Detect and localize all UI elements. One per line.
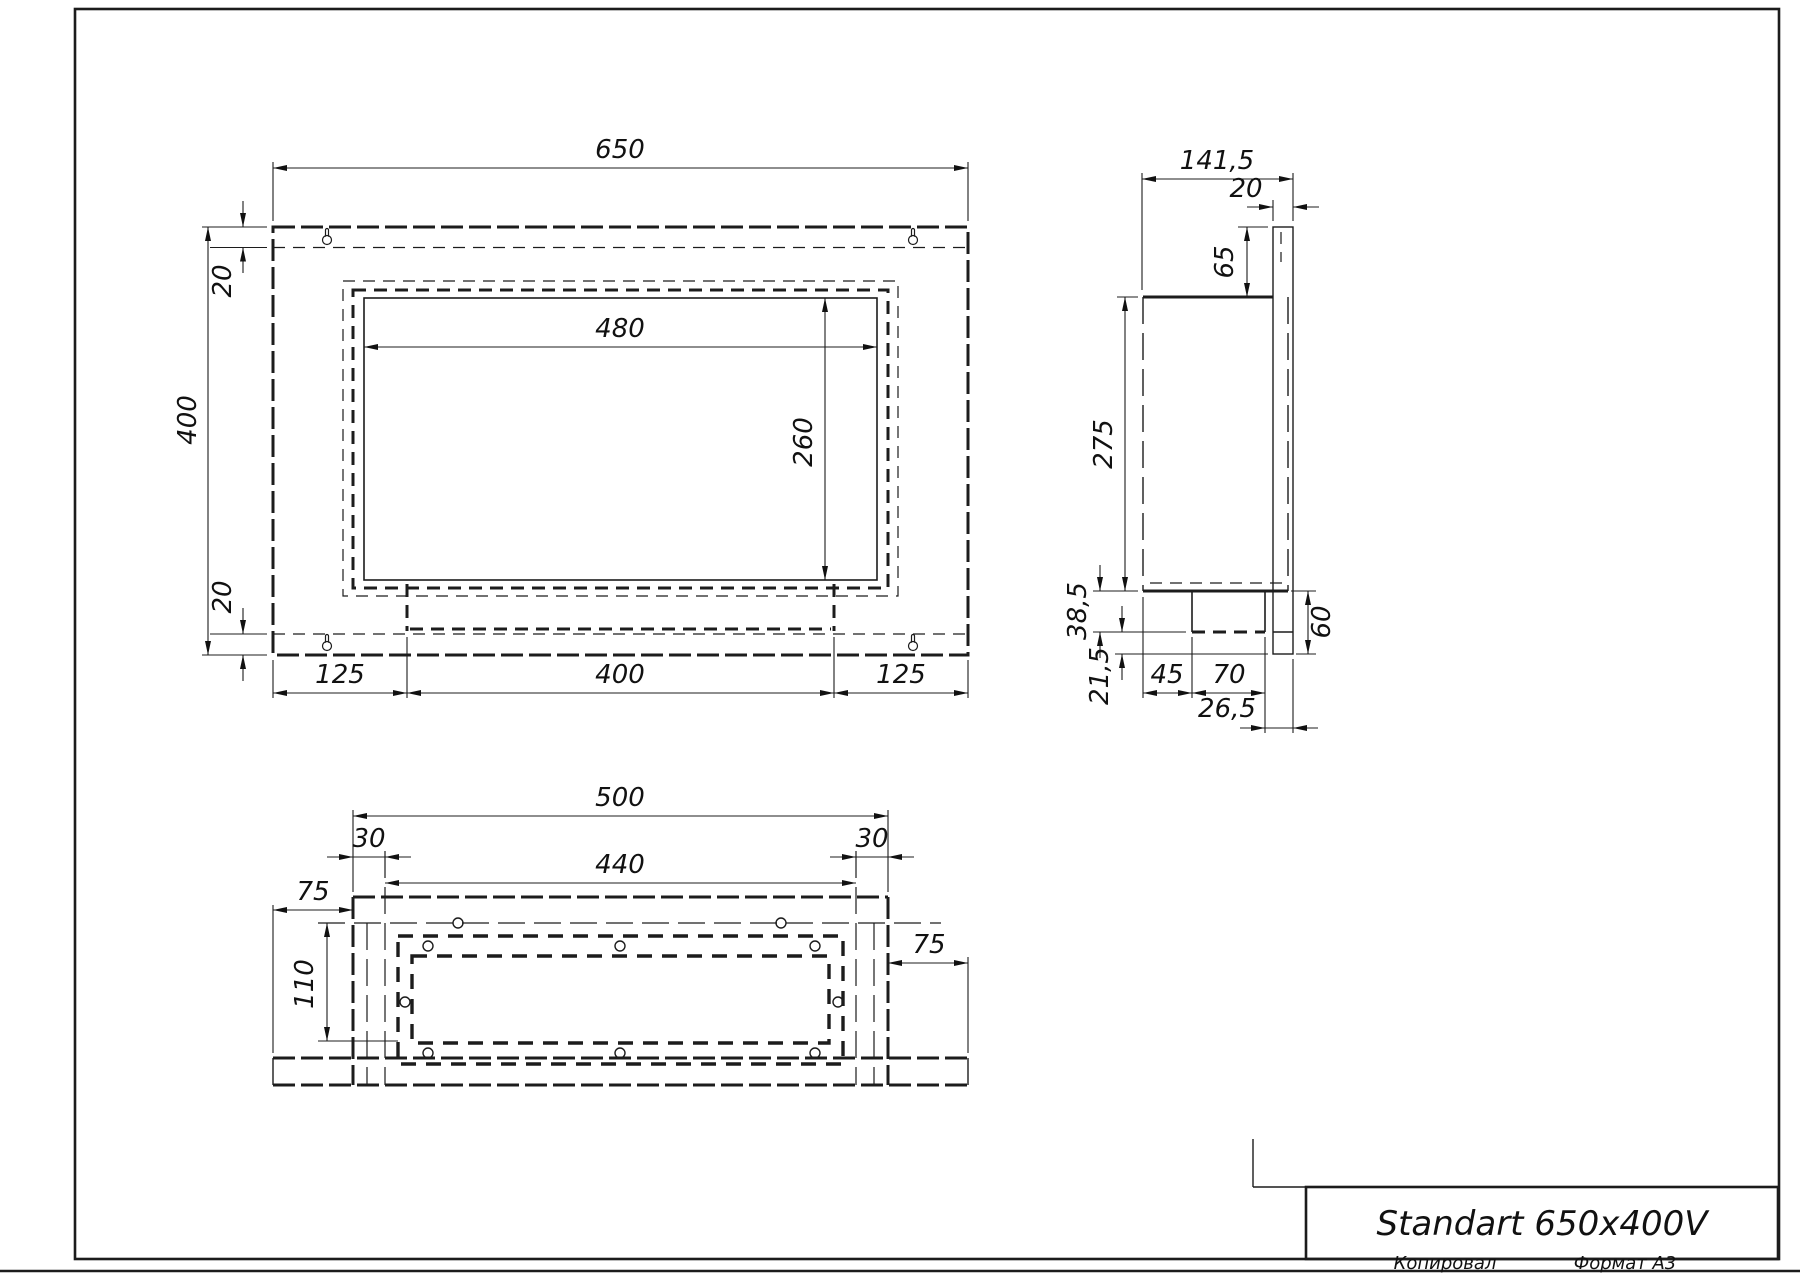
keyhole-slot [323, 635, 332, 651]
dim-bottom-depth: 110 [290, 959, 320, 1009]
keyhole-slot [909, 229, 918, 245]
dim-side-flange: 60 [1307, 605, 1337, 638]
dim-front-width: 650 [595, 135, 645, 165]
dim-bottom-box-width: 500 [595, 783, 645, 813]
dim-front-opening-width: 480 [595, 314, 645, 344]
dim-side-burner-back: 26,5 [1198, 694, 1256, 724]
border-frame [75, 9, 1779, 1259]
dim-bottom-opening: 440 [595, 850, 645, 880]
bottom-hole-band-inner [412, 956, 829, 1043]
dim-front-offset-bottom: 20 [208, 580, 238, 613]
drawing-sheet: 650 400 20 20 480 260 125 400 125 [0, 0, 1800, 1273]
front-dimensions: 650 400 20 20 480 260 125 400 125 [173, 135, 968, 698]
dim-side-bottom-gap: 21,5 [1085, 647, 1115, 705]
dim-bottom-flange-left: 75 [296, 877, 329, 907]
bottom-view: 500 30 30 440 75 110 75 [273, 783, 968, 1085]
dim-bottom-flange-right: 75 [912, 930, 945, 960]
footer-copied-label: Копировал [1394, 1253, 1497, 1273]
dim-bottom-inset-right: 30 [855, 824, 888, 854]
front-view: 650 400 20 20 480 260 125 400 125 [173, 135, 968, 698]
keyhole-slot [323, 229, 332, 245]
dim-side-tab: 65 [1210, 245, 1240, 278]
keyhole-slot [909, 635, 918, 651]
dim-side-depth: 141,5 [1180, 146, 1254, 176]
dim-side-body: 275 [1089, 419, 1119, 469]
page-frame [0, 9, 1800, 1271]
side-view: 141,5 20 65 275 38,5 21,5 60 45 [1063, 146, 1337, 733]
dim-front-offset-top: 20 [208, 264, 238, 297]
dim-front-margin-left: 125 [315, 660, 365, 690]
bottom-dimensions: 500 30 30 440 75 110 75 [273, 783, 968, 1053]
drawing-title: Standart 650x400V [1376, 1204, 1710, 1244]
footer-format-label: Формат А3 [1574, 1253, 1677, 1273]
dim-front-opening-height: 260 [789, 417, 819, 467]
technical-drawing: 650 400 20 20 480 260 125 400 125 [0, 0, 1800, 1273]
dim-side-burner-drop: 38,5 [1063, 582, 1093, 640]
dim-side-plate: 20 [1229, 174, 1262, 204]
dim-bottom-inset-left: 30 [352, 824, 385, 854]
dim-front-margin-right: 125 [876, 660, 926, 690]
side-dimensions: 141,5 20 65 275 38,5 21,5 60 45 [1063, 146, 1337, 733]
title-block: Standart 650x400V Копировал Формат А3 [1253, 1139, 1778, 1273]
dim-side-burner-front: 45 [1150, 660, 1183, 690]
dim-front-height: 400 [173, 395, 203, 445]
mounting-holes [400, 918, 843, 1058]
dim-front-burner-width: 400 [595, 660, 645, 690]
dim-side-burner-depth: 70 [1212, 660, 1245, 690]
